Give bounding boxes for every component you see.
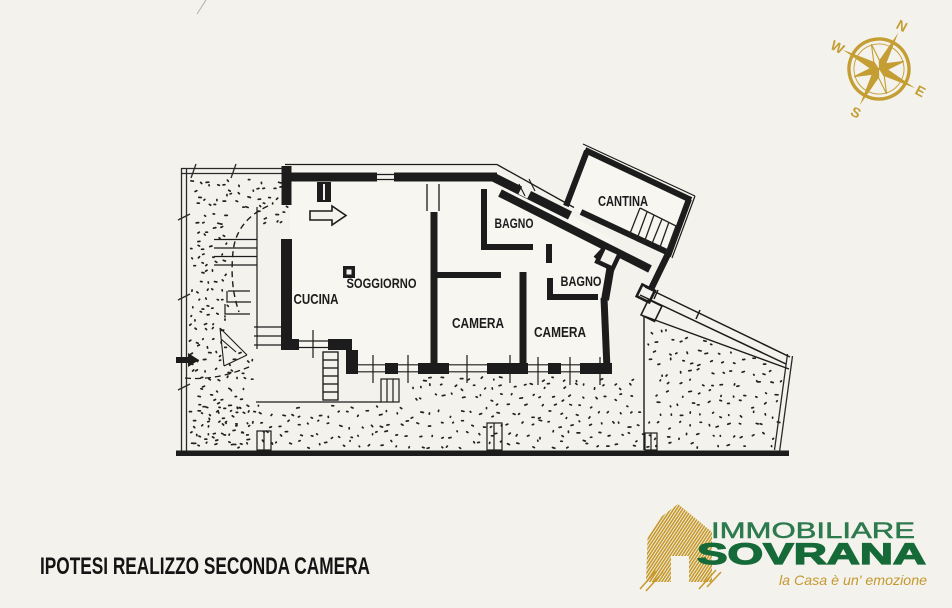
svg-text:CANTINA: CANTINA — [598, 194, 648, 210]
svg-text:CAMERA: CAMERA — [452, 316, 504, 332]
svg-text:SOVRANA: SOVRANA — [697, 538, 926, 571]
svg-text:SOGGIORNO: SOGGIORNO — [347, 275, 417, 291]
svg-text:IPOTESI REALIZZO SECONDA CAMER: IPOTESI REALIZZO SECONDA CAMERA — [40, 553, 370, 580]
svg-text:la Casa è un' emozione: la Casa è un' emozione — [779, 572, 927, 588]
svg-text:CUCINA: CUCINA — [294, 291, 339, 308]
svg-text:BAGNO: BAGNO — [495, 215, 534, 231]
svg-text:BAGNO: BAGNO — [561, 273, 602, 289]
svg-text:CAMERA: CAMERA — [534, 325, 586, 341]
